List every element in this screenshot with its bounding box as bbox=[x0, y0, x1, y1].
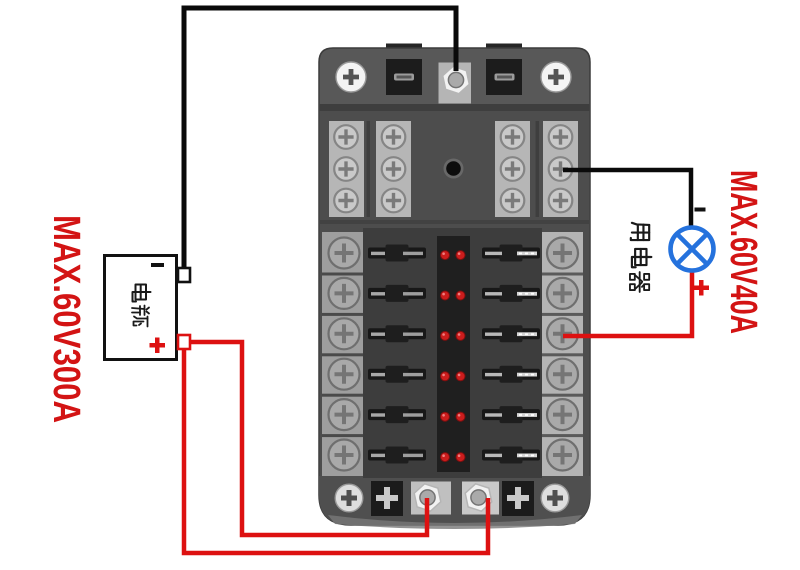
svg-text:MAX.60V40A: MAX.60V40A bbox=[722, 170, 764, 334]
svg-text:MAX.60V300A: MAX.60V300A bbox=[45, 215, 87, 423]
